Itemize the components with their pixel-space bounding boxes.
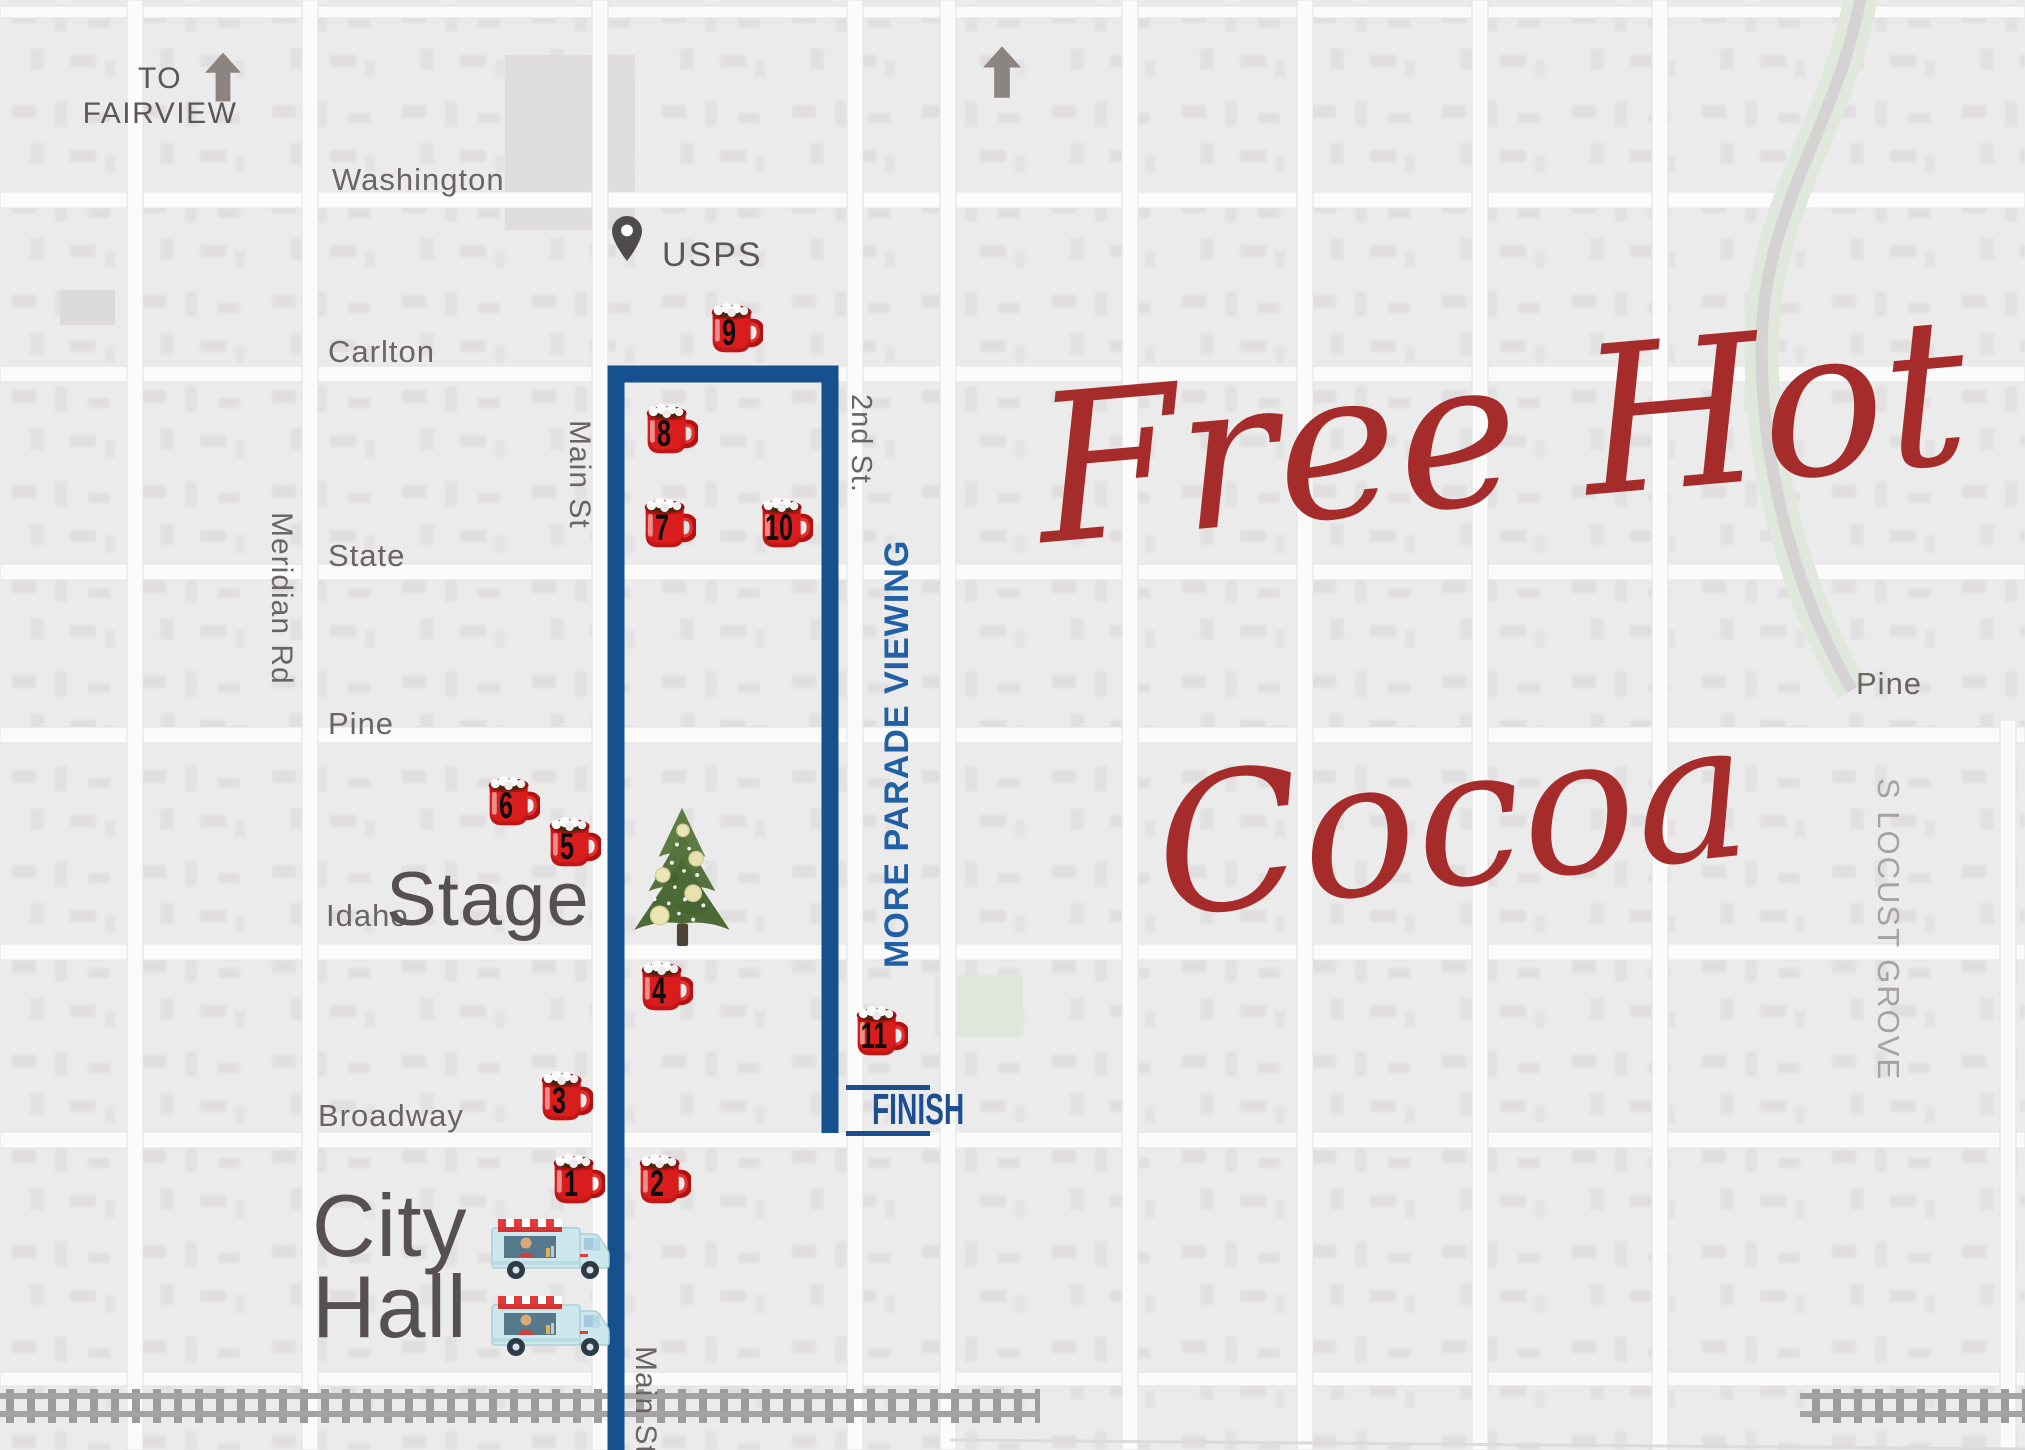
finish-marker: FINISH	[846, 1085, 930, 1136]
cocoa-station-11: 11	[851, 1002, 908, 1059]
cocoa-station-number: 1	[555, 1165, 586, 1203]
title-cocoa: Cocoa	[1147, 694, 1757, 945]
north-arrow-icon	[983, 46, 1021, 98]
cocoa-station-3: 3	[536, 1067, 593, 1124]
parade-map: TO FAIRVIEW Washington Carlton State Pin…	[0, 0, 2025, 1450]
location-pin-icon	[612, 216, 642, 261]
street-label-state: State	[328, 538, 405, 574]
street-label-broadway: Broadway	[318, 1098, 464, 1134]
cocoa-station-2: 2	[634, 1150, 691, 1207]
food-truck-icon	[490, 1214, 612, 1284]
city-hall-label: City Hall	[312, 1186, 468, 1348]
cocoa-station-number: 10	[763, 509, 794, 547]
cocoa-station-number: 8	[648, 415, 679, 453]
food-truck-icon	[490, 1291, 612, 1361]
city-hall-line2: Hall	[312, 1267, 468, 1348]
cocoa-station-5: 5	[544, 813, 601, 870]
cocoa-station-number: 9	[713, 314, 744, 352]
cocoa-station-number: 5	[551, 828, 582, 866]
cocoa-station-9: 9	[706, 299, 763, 356]
cocoa-station-6: 6	[483, 772, 540, 829]
street-label-pine-east: Pine	[1856, 666, 1922, 702]
street-label-s-locust-grove: S LOCUST GROVE	[1870, 778, 1906, 1081]
to-fairview-line2: FAIRVIEW	[60, 97, 260, 132]
finish-label: FINISH	[872, 1091, 964, 1128]
more-parade-viewing-label: MORE PARADE VIEWING	[878, 488, 917, 968]
cocoa-station-1: 1	[548, 1150, 605, 1207]
cocoa-station-number: 6	[490, 787, 521, 825]
to-fairview-line1: TO	[60, 62, 260, 97]
street-label-pine-west: Pine	[328, 706, 394, 742]
railroad-track-left	[0, 1389, 1040, 1423]
city-hall-line1: City	[312, 1186, 468, 1267]
cocoa-station-number: 11	[858, 1017, 889, 1055]
street-label-carlton: Carlton	[328, 334, 435, 370]
cocoa-station-8: 8	[641, 400, 698, 457]
cocoa-station-number: 4	[643, 972, 674, 1010]
street-label-washington: Washington	[332, 162, 505, 198]
street-label-2nd-st: 2nd St.	[844, 394, 877, 493]
to-fairview-label: TO FAIRVIEW	[60, 62, 260, 131]
christmas-tree-icon	[626, 806, 738, 948]
railroad-track-right	[1800, 1389, 2025, 1423]
street-label-main-st-south: Main St	[628, 1346, 662, 1450]
usps-label: USPS	[662, 236, 763, 275]
cocoa-station-number: 7	[646, 509, 677, 547]
cocoa-station-4: 4	[636, 957, 693, 1014]
cocoa-station-number: 2	[641, 1165, 672, 1203]
cocoa-station-7: 7	[639, 494, 696, 551]
cocoa-station-10: 10	[756, 494, 813, 551]
cocoa-station-number: 3	[543, 1082, 574, 1120]
street-label-main-st-north: Main St	[562, 420, 596, 529]
street-label-meridian-rd: Meridian Rd	[264, 512, 298, 685]
